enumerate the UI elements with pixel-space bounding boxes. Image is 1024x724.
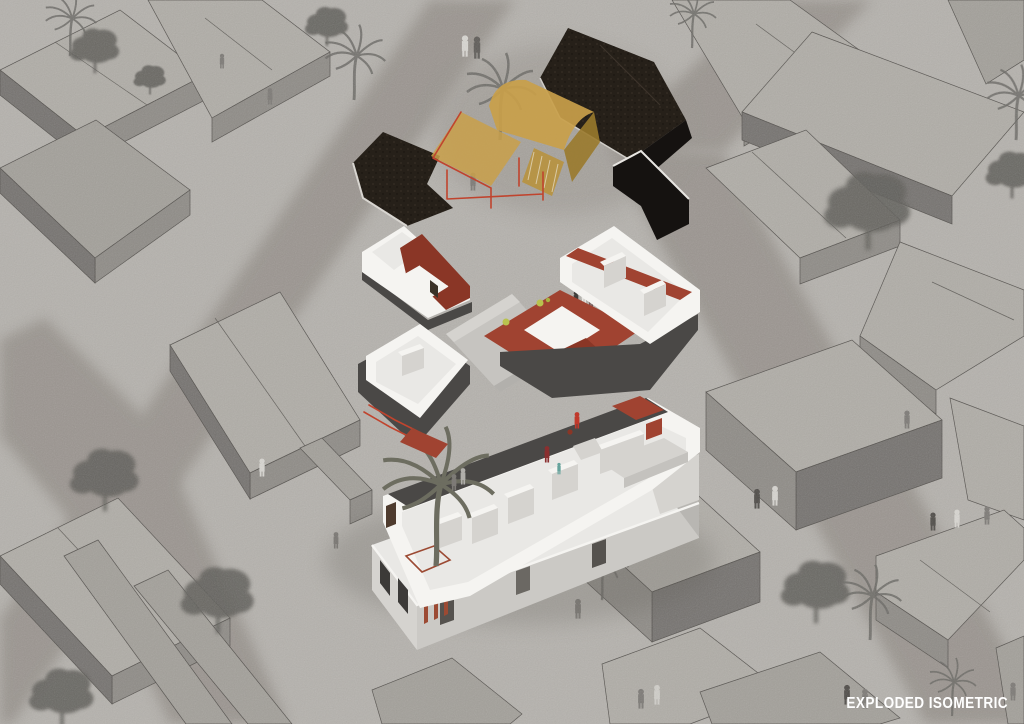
drawing-title-label: EXPLODED ISOMETRIC xyxy=(846,695,1008,712)
exploded-isometric-drawing: EXPLODED ISOMETRIC xyxy=(0,0,1024,724)
planter-plant xyxy=(503,319,510,326)
ground-door xyxy=(386,502,396,528)
plinth-door-opening xyxy=(592,539,606,568)
drawing-canvas: EXPLODED ISOMETRIC xyxy=(0,0,1024,724)
planter-plant xyxy=(546,298,550,302)
planter-plant xyxy=(537,300,544,307)
plinth-window-opening xyxy=(516,566,530,595)
vacuum-cleaner xyxy=(567,429,572,434)
drawing-title: EXPLODED ISOMETRIC xyxy=(846,695,1008,712)
